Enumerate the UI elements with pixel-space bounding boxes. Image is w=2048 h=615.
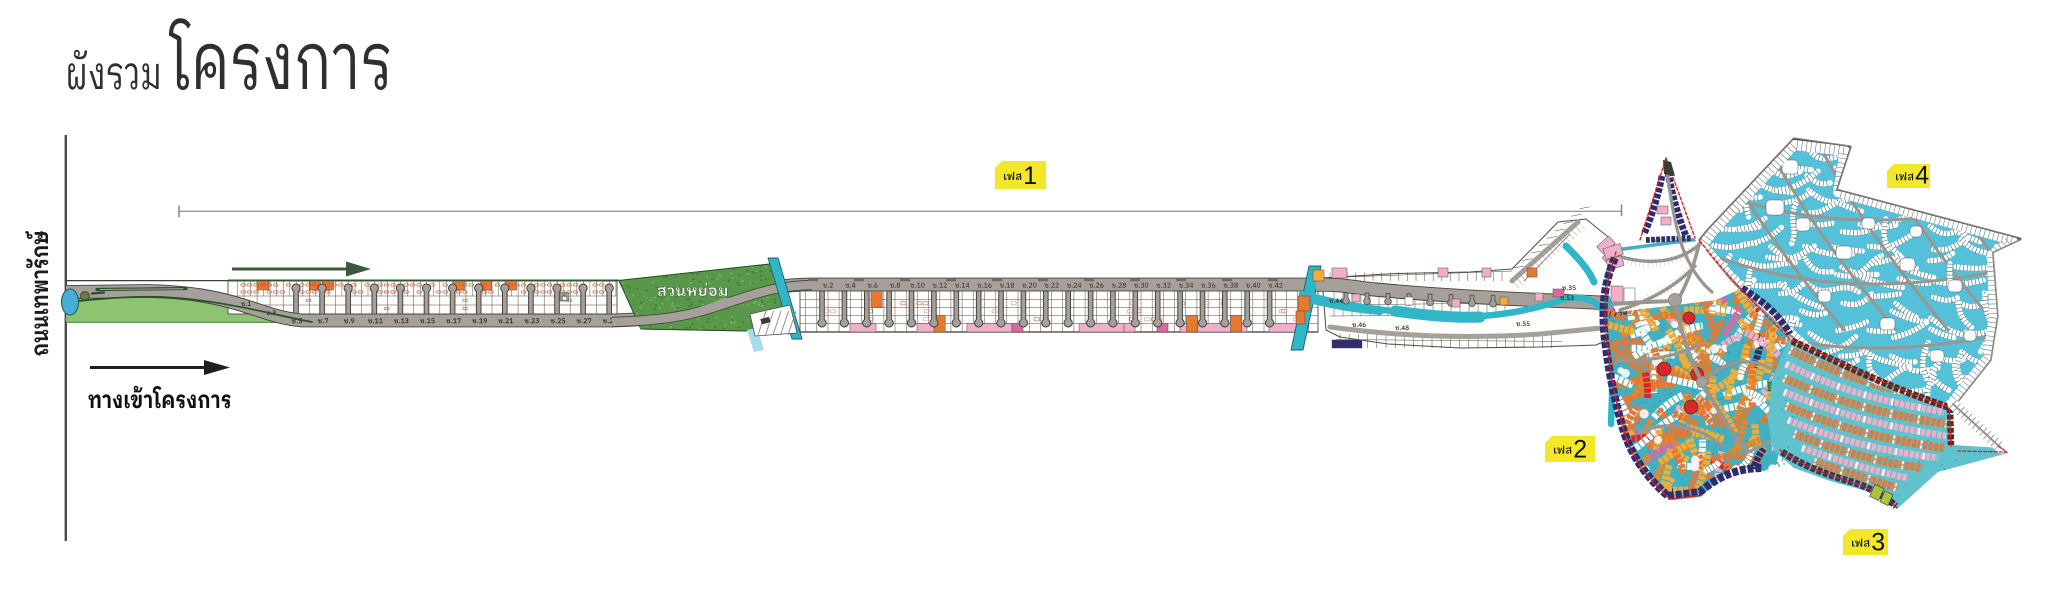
svg-text:2: 2: [1573, 435, 1587, 463]
svg-text:3: 3: [1871, 528, 1885, 556]
svg-text:1: 1: [1023, 162, 1037, 190]
svg-text:4: 4: [1915, 162, 1929, 190]
